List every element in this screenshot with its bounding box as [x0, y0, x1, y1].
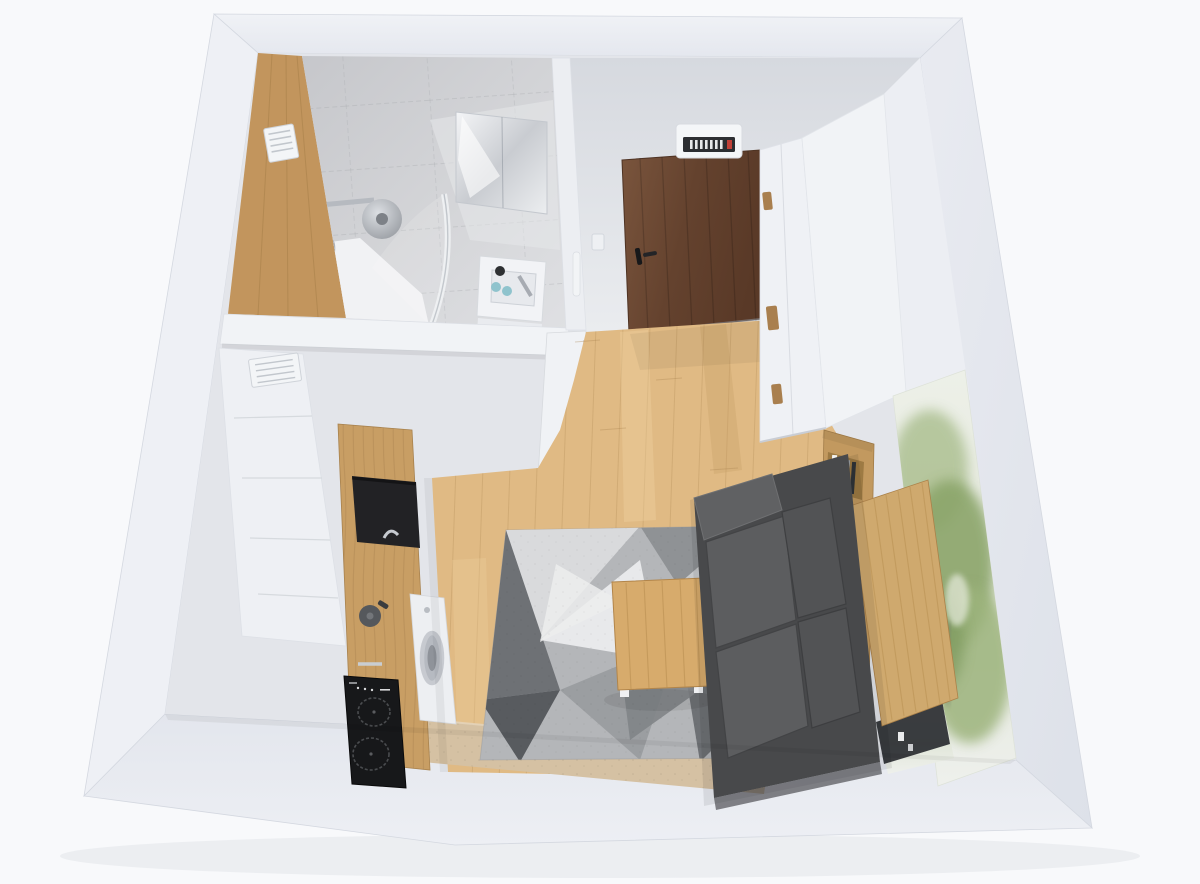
soap-bottle — [495, 266, 505, 276]
sofa — [690, 454, 892, 810]
mirror-cabinet — [456, 112, 547, 214]
bathroom-vent — [263, 124, 298, 163]
cooktop — [344, 676, 406, 788]
floorplan-svg — [0, 0, 1200, 884]
cup-1 — [491, 282, 501, 292]
entry-door — [622, 150, 770, 333]
table-leg-1 — [620, 690, 629, 697]
cooktop-display — [349, 682, 357, 684]
wall-north — [214, 14, 962, 58]
fuse-box — [676, 124, 742, 158]
apartment-render — [0, 0, 1200, 884]
shower-head-center — [376, 213, 388, 225]
under-desk-glint-1 — [898, 732, 904, 741]
moka-lid — [367, 613, 374, 620]
under-desk-glint-2 — [908, 744, 913, 751]
bathroom — [228, 53, 568, 338]
light-switch-hall — [592, 234, 604, 250]
door-jamb — [573, 252, 580, 296]
cup-2 — [502, 286, 512, 296]
fusebox-red-mark — [727, 140, 732, 149]
washer-knob — [424, 607, 430, 613]
